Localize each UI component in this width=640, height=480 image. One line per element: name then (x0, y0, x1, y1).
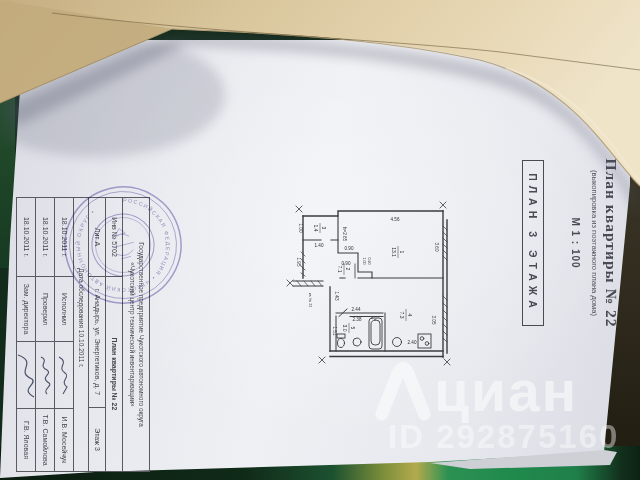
room-5-label: 5 3.0 (342, 323, 356, 333)
plan-floor-label: ПЛАН 3 ЭТАЖА (522, 160, 544, 326)
row-name: И.В. Мосейчук (55, 408, 73, 471)
svg-text:3.0: 3.0 (342, 325, 348, 332)
room-3-label: 3 1.4 (313, 223, 327, 233)
dim-1-00: 1.00 (298, 224, 303, 233)
svg-text:13.1: 13.1 (391, 247, 397, 257)
svg-text:1.4: 1.4 (313, 225, 319, 232)
room-4-label: 4 7.3 (399, 309, 413, 321)
cian-pin-icon (372, 360, 434, 422)
photo-of-floor-plan-document: { "watermark":{"brand":"циан","id":"ID 2… (0, 0, 640, 480)
official-stamp: РОССИЙСКАЯ ФЕДЕРАЦИЯ • ЧУКОТСКИЙ АВТОНОМ… (60, 182, 186, 308)
row-role: Зам. директора (17, 276, 35, 341)
signature-2 (36, 341, 54, 408)
dim-1-95: 1.95 (296, 258, 301, 267)
dim-2-44: 2.44 (352, 307, 361, 312)
svg-text:7.3: 7.3 (399, 312, 405, 319)
floor-plan-drawing: 4.56 1.40 0.90 0.90 2.44 2.38 2.40 1.00 … (285, 190, 470, 372)
dim-h-2-65: h=2.65 (342, 227, 347, 242)
dim-3-60: 3.60 (434, 243, 439, 252)
floor-label: Этаж 3 (89, 407, 105, 471)
watermark-id: ID 292875160 (388, 418, 640, 456)
row-date: 18.10.2011 г. (17, 198, 35, 276)
dim-0-90-a: 0.90 (345, 246, 354, 251)
dim-4-56: 4.56 (391, 217, 400, 222)
svg-text:2: 2 (345, 268, 351, 271)
dim-1-40: 1.40 (315, 243, 324, 248)
watermark: циан ID 292875160 (372, 360, 640, 456)
signature-1 (55, 341, 73, 408)
svg-text:7.1: 7.1 (337, 266, 343, 273)
dim-1-43: 1.43 (334, 292, 339, 301)
svg-text:4: 4 (407, 314, 413, 317)
room-1-label: 1 13.1 (391, 246, 405, 258)
svg-text:1: 1 (399, 251, 405, 254)
row-name: Г.В. Яловая (17, 408, 35, 471)
row-role: Проверил (36, 276, 54, 341)
row-name: Т.В. Самойлова (36, 408, 54, 471)
dim-2-40: 2.40 (408, 340, 417, 345)
dim-3-05: 3.05 (431, 316, 436, 325)
svg-text:3: 3 (321, 227, 327, 230)
apartment-number-label: кв. № 22 (308, 293, 312, 307)
dim-0-90-small: 0.90 (367, 258, 371, 265)
row-date: 18.10.2011 г. (36, 198, 54, 276)
dim-1-51: 1.51 (332, 327, 337, 336)
watermark-brand: циан (434, 363, 578, 420)
signature-3 (17, 341, 35, 408)
dim-1-00-small: 1.00 (362, 258, 366, 265)
svg-text:5: 5 (350, 327, 356, 330)
dim-2-38: 2.38 (353, 317, 362, 322)
